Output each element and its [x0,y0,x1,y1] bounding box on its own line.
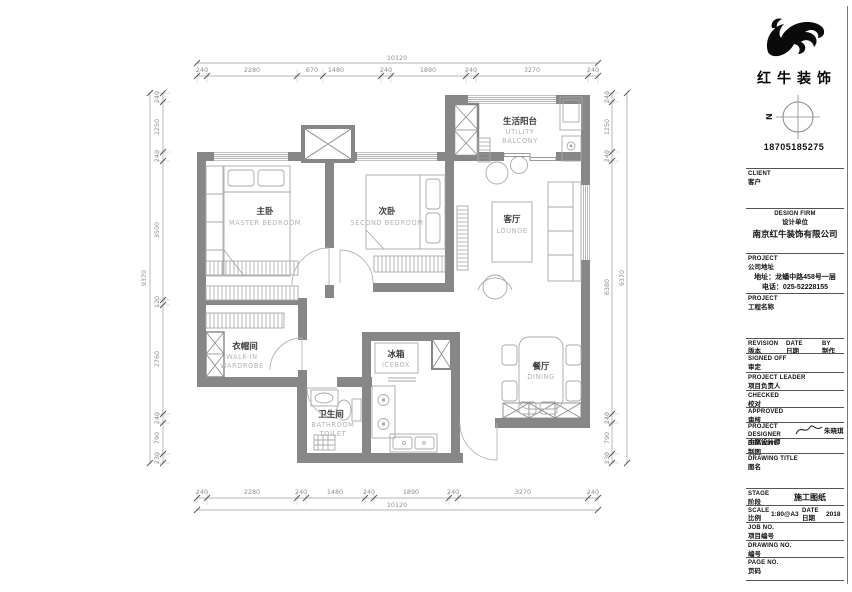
plant [511,157,528,174]
bay-window [503,403,581,418]
svg-text:240: 240 [465,66,477,74]
svg-text:2760: 2760 [153,351,161,367]
section-page-no: PAGE NO. 页码 [748,560,842,576]
svg-text:240: 240 [380,66,392,74]
section-client: CLIENT 客户 [748,171,842,187]
room-label-bathroom: 卫生间 [318,409,344,420]
armchair [478,275,512,299]
svg-text:120: 120 [153,296,161,308]
divider [746,540,844,541]
svg-text:1890: 1890 [403,488,419,496]
section-signed-off: SIGNED OFF 审定 [748,356,842,372]
svg-text:670: 670 [306,66,318,74]
svg-text:240: 240 [196,66,208,74]
svg-text:240: 240 [447,488,459,496]
duct-shaft [454,104,478,156]
divider [746,208,844,209]
section-company-address: PROJECT 公司地址 [748,256,842,272]
svg-text:6380: 6380 [603,279,611,295]
window-band [214,153,288,161]
svg-text:240: 240 [363,488,375,496]
drawing-sheet: { "plan": { "rooms": { "master": {"zh": … [0,0,852,592]
floor-plan-svg: 10120 240 2280 670 1480 240 1890 240 327… [0,0,740,592]
section-date2: DATE 日期 [802,508,822,523]
svg-text:240: 240 [153,412,161,424]
brand-logo-icon [758,14,832,68]
svg-text:240: 240 [603,412,611,424]
dimension-labels: 10120 240 2280 670 1480 240 1890 240 327… [140,54,626,509]
svg-text:3270: 3270 [515,488,531,496]
divider [746,293,844,294]
divider [746,522,844,523]
divider [746,580,844,581]
stage-value: 施工图纸 [780,493,840,503]
door-second [340,250,373,283]
kitchen-sink [390,434,437,452]
svg-text:240: 240 [587,66,599,74]
stove-counter [372,386,395,438]
svg-text:790: 790 [153,432,161,444]
room-label-lounge: 客厅 [502,214,521,225]
divider [746,453,844,454]
scale-value: 1:80@A3 [771,511,799,519]
divider [746,253,844,254]
dim-top-total: 10120 [387,54,407,62]
svg-text:WARDROBE: WARDROBE [220,362,264,370]
divider [746,338,844,339]
window-band [582,185,590,260]
svg-text:MASTER BEDROOM: MASTER BEDROOM [229,219,301,227]
design-firm-name: 南京红牛装饰有限公司 [748,228,842,240]
svg-text:BATHROOM: BATHROOM [312,421,355,429]
room-label-dining: 餐厅 [531,361,550,372]
closet-shaft [206,332,224,377]
svg-text:LOUNGE: LOUNGE [496,227,527,235]
tv-cabinet [457,206,468,270]
svg-text:1250: 1250 [153,119,161,135]
svg-text:2280: 2280 [244,488,260,496]
title-block-border [847,6,848,584]
divider [746,353,844,354]
section-job-no: JOB NO. 项目编号 [748,525,842,541]
svg-text:BALCONY: BALCONY [502,137,538,145]
compass-n-label: N [765,113,774,120]
svg-text:1890: 1890 [420,66,436,74]
svg-text:790: 790 [603,432,611,444]
svg-text:2280: 2280 [244,66,260,74]
svg-text:UTILITY: UTILITY [506,128,535,136]
svg-text:240: 240 [153,150,161,162]
divider [746,505,844,506]
window-band [468,96,556,104]
divider [746,168,844,169]
svg-text:SECOND BEDROOM: SECOND BEDROOM [350,219,423,227]
room-labels: 主卧 MASTER BEDROOM 次卧 SECOND BEDROOM 客厅 L… [220,116,555,438]
room-label-wardrobe: 衣帽间 [232,341,258,352]
divider [746,390,844,391]
designer-name: 朱晓琪 [824,428,844,436]
svg-text:WALK-IN: WALK-IN [226,353,257,361]
balcony-rack [478,138,490,162]
svg-text:240: 240 [603,150,611,162]
svg-text:3270: 3270 [524,66,540,74]
sliding-door-balcony [504,154,556,161]
dim-right-total: 9370 [618,270,626,286]
svg-text:TOILET: TOILET [319,430,347,438]
master-cabinet-strip [206,286,298,300]
room-label-balcony: 生活阳台 [503,116,538,127]
elevator-shaft [303,127,353,161]
duct-shaft [432,339,451,369]
section-drawing: DRAWING 制图 [748,441,842,457]
svg-text:240: 240 [196,488,208,496]
svg-text:DINING: DINING [527,373,555,381]
divider [746,438,844,439]
room-label-second: 次卧 [378,206,396,217]
room-label-icebox: 冰箱 [387,349,405,360]
title-block: 红牛装饰 N 18705185275 CLIENT 客户 DESIGN FIRM… [742,0,850,592]
date-value: 2018 [826,511,840,519]
divider [746,372,844,373]
master-cabinet-strip [206,261,298,275]
section-project-leader: PROJECT LEADER 项目负责人 [748,375,842,391]
fixtures [206,97,582,452]
svg-text:3500: 3500 [153,222,161,238]
svg-text:240: 240 [603,91,611,103]
second-cabinet-strip [374,256,445,272]
svg-text:230: 230 [153,452,161,464]
divider [746,488,844,489]
section-scale: SCALE 比例 [748,508,770,523]
divider [746,407,844,408]
dim-left-total: 9370 [140,270,148,286]
door-entry [460,423,497,460]
room-label-master: 主卧 [256,206,274,217]
section-project-name: PROJECT 工程名称 [748,296,842,312]
north-compass-icon: N [764,94,828,140]
designer-signature [794,423,824,437]
dim-bottom-total: 10120 [387,501,407,509]
divider [746,557,844,558]
svg-text:240: 240 [295,488,307,496]
door-wardrobe [270,338,302,370]
svg-text:230: 230 [603,452,611,464]
bath-sink [311,390,338,406]
svg-text:1250: 1250 [603,119,611,135]
svg-text:1480: 1480 [328,66,344,74]
section-drawing-title: DRAWING TITLE 图名 [748,456,842,472]
brand-phone: 18705185275 [742,142,846,152]
svg-text:1480: 1480 [327,488,343,496]
svg-text:240: 240 [153,91,161,103]
plant [486,162,508,184]
company-address-line2: 电话：025-52228155 [748,282,842,292]
svg-text:ICEBOX: ICEBOX [382,361,410,369]
window-band [357,153,437,161]
master-closet [206,166,223,276]
wardrobe-strip [206,313,284,328]
company-address-line1: 地址：龙蟠中路458号一层 [748,272,842,282]
svg-text:240: 240 [587,488,599,496]
brand-name: 红牛装饰 [742,68,846,88]
section-design-firm: DESIGN FIRM 设计单位 [748,211,842,227]
sofa [548,182,581,281]
